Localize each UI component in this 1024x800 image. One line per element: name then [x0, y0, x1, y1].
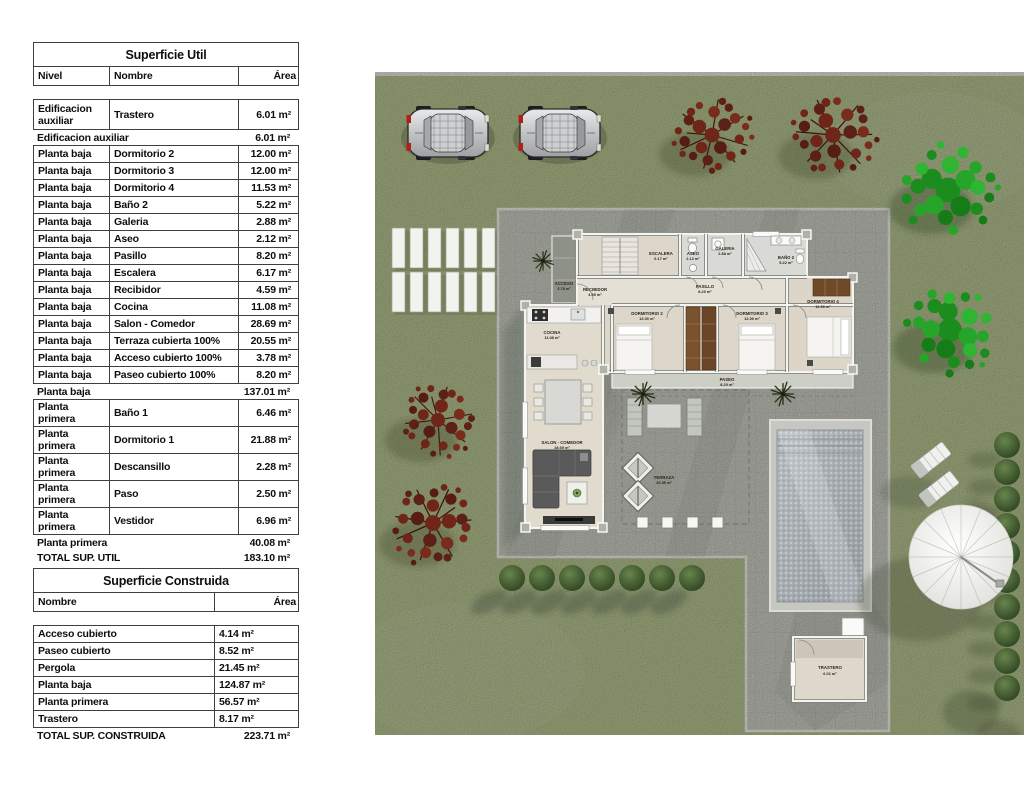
cell-area: 28.69 m²: [239, 317, 300, 331]
cell-area: 2.28 m²: [239, 460, 300, 474]
cell-nivel: Planta primera: [34, 481, 109, 507]
cell-nombre: Trastero: [34, 712, 214, 726]
cell-area: 2.88 m²: [239, 215, 300, 229]
total-row: TOTAL SUP. CONSTRUIDA 223.71 m²: [33, 728, 299, 743]
cell-area: 8.20 m²: [239, 249, 300, 263]
subtotal-area: 137.01 m²: [238, 385, 299, 399]
cell-area: 6.46 m²: [239, 406, 300, 420]
cell-nivel: Planta primera: [34, 508, 109, 534]
coffee-table: [567, 482, 587, 504]
cell-area: 3.78 m²: [239, 351, 300, 365]
table-row: Planta baja Baño 2 5.22 m²: [33, 197, 299, 214]
cell-nombre: Pergola: [34, 661, 214, 675]
cell-nivel: Edificacion auxiliar: [34, 102, 109, 128]
cell-nivel: Planta baja: [34, 351, 109, 365]
room-label-area: 20.55 m²: [656, 480, 672, 485]
cell-nivel: Planta baja: [34, 181, 109, 195]
total-label: TOTAL SUP. CONSTRUIDA: [33, 729, 213, 743]
cell-nivel: Planta baja: [34, 164, 109, 178]
col-header-area: Área: [239, 67, 300, 85]
table-title: Superficie Util: [33, 42, 299, 67]
room-label-area: 5.22 m²: [779, 260, 793, 265]
cell-nombre: Paseo cubierto: [34, 644, 214, 658]
cell-area: 8.17 m²: [214, 711, 300, 727]
cell-nivel: Planta baja: [34, 283, 109, 297]
cell-nombre: Descansillo: [109, 454, 239, 480]
cell-area: 124.87 m²: [214, 677, 300, 693]
page: Superficie Util Nivel Nombre Área Edific…: [0, 0, 1024, 800]
cell-area: 2.12 m²: [239, 232, 300, 246]
car-icon: [513, 106, 607, 164]
cell-nombre: Acceso cubierto: [34, 627, 214, 641]
table-gap: [33, 612, 299, 625]
subtotal-label: Planta primera: [33, 536, 238, 550]
cell-nombre: Pasillo: [109, 248, 239, 264]
table-gap: [33, 86, 299, 99]
table-row: Planta baja Dormitorio 4 11.53 m²: [33, 180, 299, 197]
cell-area: 11.08 m²: [239, 300, 300, 314]
subtotal-area: 40.08 m²: [238, 536, 299, 550]
table-row: Paseo cubierto 8.52 m²: [33, 643, 299, 660]
cell-nivel: Planta baja: [34, 198, 109, 212]
cell-nombre: Aseo: [109, 231, 239, 247]
cell-area: 4.14 m²: [214, 626, 300, 642]
swimming-pool: [770, 420, 871, 611]
table-row: Planta baja Dormitorio 2 12.00 m²: [33, 145, 299, 163]
cell-area: 8.52 m²: [214, 643, 300, 659]
table-row: Planta baja Dormitorio 3 12.00 m²: [33, 163, 299, 180]
cell-area: 6.17 m²: [239, 266, 300, 280]
cell-area: 2.50 m²: [239, 487, 300, 501]
cell-nombre: Baño 2: [109, 197, 239, 213]
room-label-area: 6.17 m²: [654, 256, 668, 261]
room-label-area: 11.08 m²: [544, 335, 560, 340]
table-row: Planta baja 124.87 m²: [33, 677, 299, 694]
total-area: 223.71 m²: [213, 729, 299, 743]
subtotal-row: Edificacion auxiliar 6.01 m²: [33, 130, 299, 145]
cell-area: 4.59 m²: [239, 283, 300, 297]
table-body: Acceso cubierto 4.14 m² Paseo cubierto 8…: [33, 625, 299, 743]
cell-area: 6.01 m²: [239, 108, 300, 122]
table-row: Planta primera Baño 1 6.46 m²: [33, 399, 299, 427]
table-row: Planta primera Descansillo 2.28 m²: [33, 454, 299, 481]
cell-area: 6.96 m²: [239, 514, 300, 528]
room-label-area: 3.78 m²: [557, 286, 571, 291]
cell-nombre: Acceso cubierto 100%: [109, 350, 239, 366]
superficie-util-table: Superficie Util Nivel Nombre Área Edific…: [33, 42, 299, 565]
total-row: TOTAL SUP. UTIL 183.10 m²: [33, 550, 299, 565]
cell-nombre: Terraza cubierta 100%: [109, 333, 239, 349]
staircase: [602, 237, 638, 275]
cell-nivel: Planta baja: [34, 215, 109, 229]
table-title: Superficie Construida: [33, 568, 299, 593]
cell-area: 5.22 m²: [239, 198, 300, 212]
cell-area: 56.57 m²: [214, 694, 300, 710]
table-row: Edificacion auxiliar Trastero 6.01 m²: [33, 99, 299, 130]
tv-bench: [543, 516, 595, 524]
table-row: Planta baja Acceso cubierto 100% 3.78 m²: [33, 350, 299, 367]
cell-nivel: Planta baja: [34, 266, 109, 280]
room-label: TRASTERO: [818, 665, 842, 670]
room-label-area: 2.88 m²: [718, 251, 732, 256]
room-label-area: 2.12 m²: [686, 256, 700, 261]
cell-nivel: Planta baja: [34, 249, 109, 263]
table-row: Planta primera 56.57 m²: [33, 694, 299, 711]
superficie-construida-table: Superficie Construida Nombre Área Acceso…: [33, 568, 299, 743]
table-row: Planta baja Escalera 6.17 m²: [33, 265, 299, 282]
total-area: 183.10 m²: [238, 551, 299, 565]
subtotal-row: Planta baja 137.01 m²: [33, 384, 299, 399]
outdoor-table: [647, 404, 681, 428]
table-row: Planta primera Paso 2.50 m²: [33, 481, 299, 508]
cell-area: 8.20 m²: [239, 368, 300, 382]
cell-nombre: Paseo cubierto 100%: [109, 367, 239, 383]
table-header: Nivel Nombre Área: [33, 67, 299, 86]
table-row: Planta primera Vestidor 6.96 m²: [33, 508, 299, 535]
cell-nombre: Salon - Comedor: [109, 316, 239, 332]
cell-nivel: Planta primera: [34, 400, 109, 426]
plant-icon: [631, 382, 654, 405]
table-row: Planta baja Salon - Comedor 28.69 m²: [33, 316, 299, 333]
cell-nombre: Trastero: [109, 100, 239, 129]
table-row: Trastero 8.17 m²: [33, 711, 299, 728]
cell-nivel: Planta baja: [34, 334, 109, 348]
cell-nombre: Dormitorio 4: [109, 180, 239, 196]
col-header-nombre: Nombre: [34, 593, 214, 611]
cell-nombre: Planta primera: [34, 695, 214, 709]
table-row: Planta primera Dormitorio 1 21.88 m²: [33, 427, 299, 454]
cell-nivel: Planta primera: [34, 454, 109, 480]
table-row: Planta baja Terraza cubierta 100% 20.55 …: [33, 333, 299, 350]
col-header-nivel: Nivel: [34, 67, 109, 85]
room-label-area: 8.20 m²: [720, 382, 734, 387]
cell-nombre: Vestidor: [109, 508, 239, 534]
cell-area: 12.00 m²: [239, 147, 300, 161]
cell-nombre: Baño 1: [109, 400, 239, 426]
subtotal-area: 6.01 m²: [238, 131, 299, 145]
room-label-area: 12.00 m²: [639, 316, 655, 321]
cell-nivel: Planta baja: [34, 317, 109, 331]
cell-nivel: Planta baja: [34, 232, 109, 246]
col-header-area: Área: [214, 593, 300, 611]
room-label-area: 12.00 m²: [744, 316, 760, 321]
table-body: Edificacion auxiliar Trastero 6.01 m² Ed…: [33, 99, 299, 565]
car-icon: [401, 106, 495, 164]
cell-nombre: Escalera: [109, 265, 239, 281]
table-row: Planta baja Paseo cubierto 100% 8.20 m²: [33, 367, 299, 384]
cell-nivel: Planta primera: [34, 427, 109, 453]
room-label-area: 6.01 m²: [823, 671, 837, 676]
dining-table: [534, 380, 592, 424]
table-row: Planta baja Pasillo 8.20 m²: [33, 248, 299, 265]
room-label-area: 11.53 m²: [815, 304, 831, 309]
table-row: Planta baja Aseo 2.12 m²: [33, 231, 299, 248]
col-header-nombre: Nombre: [109, 67, 239, 85]
plant-icon: [533, 251, 554, 272]
room-label-area: 8.20 m²: [698, 289, 712, 294]
table-row: Planta baja Cocina 11.08 m²: [33, 299, 299, 316]
subtotal-label: Planta baja: [33, 385, 238, 399]
room-label-area: 28.69 m²: [554, 445, 570, 450]
cell-nombre: Dormitorio 1: [109, 427, 239, 453]
acceso-entry: [552, 236, 577, 303]
table-row: Acceso cubierto 4.14 m²: [33, 625, 299, 643]
table-row: Pergola 21.45 m²: [33, 660, 299, 677]
cell-area: 12.00 m²: [239, 164, 300, 178]
cell-nombre: Dormitorio 2: [109, 146, 239, 162]
table-header: Nombre Área: [33, 593, 299, 612]
cell-nombre: Cocina: [109, 299, 239, 315]
cell-nombre: Recibidor: [109, 282, 239, 298]
cell-nombre: Dormitorio 3: [109, 163, 239, 179]
cell-area: 21.88 m²: [239, 433, 300, 447]
parasol-icon: [909, 505, 1013, 609]
cell-area: 20.55 m²: [239, 334, 300, 348]
room-label-area: 4.59 m²: [588, 292, 602, 297]
cell-nombre: Planta baja: [34, 678, 214, 692]
table-row: Planta baja Recibidor 4.59 m²: [33, 282, 299, 299]
site-plan: ACCESO 3.78 m² RECIBIDOR 4.59 m² ESCALER…: [375, 72, 1024, 735]
subtotal-label: Edificacion auxiliar: [33, 131, 238, 145]
subtotal-row: Planta primera 40.08 m²: [33, 535, 299, 550]
plant-icon: [771, 382, 794, 405]
table-row: Planta baja Galeria 2.88 m²: [33, 214, 299, 231]
cell-nivel: Planta baja: [34, 368, 109, 382]
cell-area: 11.53 m²: [239, 181, 300, 195]
cell-nivel: Planta baja: [34, 147, 109, 161]
total-label: TOTAL SUP. UTIL: [33, 551, 238, 565]
cell-area: 21.45 m²: [214, 660, 300, 676]
cell-nivel: Planta baja: [34, 300, 109, 314]
cell-nombre: Galeria: [109, 214, 239, 230]
cell-nombre: Paso: [109, 481, 239, 507]
